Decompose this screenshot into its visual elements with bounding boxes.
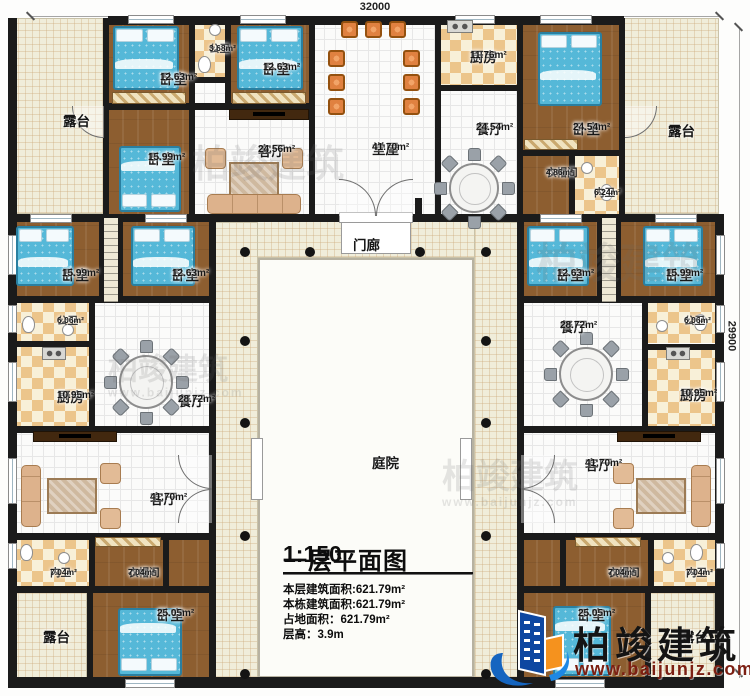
window-icon (716, 362, 725, 402)
stat-line: 占地面积：621.79m² (283, 613, 473, 628)
room-area (167, 538, 209, 587)
room-area: 12.63m² (263, 62, 300, 73)
brand-logo-url: www.baijunjz.com (575, 659, 750, 680)
window-icon (716, 305, 725, 333)
dining-table-icon (559, 347, 613, 401)
hall-chair-icon (389, 21, 406, 38)
column-dot (481, 531, 491, 541)
room-area: 12.63m² (172, 268, 209, 279)
room-衣帽间 (521, 156, 571, 216)
hall-chair-icon (403, 50, 420, 67)
window-icon (540, 214, 582, 223)
chair-icon (502, 182, 515, 195)
wall (642, 296, 648, 433)
brand-logo: 柏竣建筑 www.baijunjz.com (489, 599, 745, 694)
stat-line: 本层建筑面积:621.79m² (283, 583, 473, 598)
pillow-icon (571, 35, 597, 48)
watermark-url: www.baijunjz.com (442, 496, 578, 509)
blanket-fold (540, 70, 596, 80)
hall-chair-icon (341, 21, 358, 38)
window-icon (30, 214, 72, 223)
closet-hatch (232, 92, 306, 104)
floor-plan-canvas: 32000 29900 一层平面图1:150 本层建筑面积:621.79m² 本… (0, 0, 750, 696)
hall-chair-icon (365, 21, 382, 38)
pillow-icon (164, 229, 190, 242)
dimension-right-line (739, 28, 740, 678)
room-area: 7.04m² (608, 568, 635, 578)
dimension-right-value: 29900 (725, 321, 737, 352)
wall (517, 150, 625, 156)
pillow-icon (240, 29, 267, 42)
window-icon (655, 214, 697, 223)
dimension-top-value: 32000 (0, 1, 750, 13)
pillow-icon (46, 229, 69, 242)
stat-line: 本栋建筑面积:621.79m² (283, 598, 473, 613)
room-area (193, 81, 227, 105)
room-area: 6.06m² (684, 316, 711, 326)
room-area: 25.05m² (157, 608, 194, 619)
room-area: 6.24m² (594, 188, 621, 198)
hall-chair-icon (328, 50, 345, 67)
hall-chair-icon (403, 74, 420, 91)
sink-icon (662, 552, 674, 564)
gate-opening (251, 438, 263, 500)
pillow-icon (271, 29, 298, 42)
room-area: 28.72m² (178, 394, 215, 405)
stove-icon (42, 347, 66, 360)
room-area: 10.95m² (680, 388, 717, 399)
room-area: 3.68m² (209, 44, 236, 54)
pillow-icon (147, 29, 174, 42)
room-area: 41.70m² (585, 458, 622, 469)
watermark-url: www.baijunjz.com (108, 386, 244, 399)
closet-hatch (95, 537, 161, 547)
blanket-fold (18, 257, 68, 267)
room-area: 28.72m² (560, 320, 597, 331)
wall (89, 296, 95, 433)
column-dot (240, 247, 250, 257)
tv-cabinet-icon (617, 431, 701, 442)
tv-cabinet-icon (33, 431, 117, 442)
chair-icon (468, 148, 481, 161)
room-name: 露台 (668, 124, 695, 139)
rug-icon (636, 478, 686, 514)
room-area: 11.76m² (470, 50, 507, 61)
chair-icon (140, 340, 153, 353)
pillow-icon (134, 229, 160, 242)
room-area (101, 218, 121, 302)
room-area: 10.95m² (57, 390, 94, 401)
window-icon (240, 15, 286, 24)
column-dot (240, 418, 250, 428)
wall (8, 586, 209, 593)
armchair-icon (613, 508, 634, 529)
column-dot (240, 531, 250, 541)
blanket-fold (115, 59, 173, 69)
room-area: 6.06m² (57, 316, 84, 326)
brand-logo-icon (489, 601, 573, 693)
sink-icon (209, 24, 221, 36)
sofa-icon (207, 194, 301, 214)
pillow-icon (541, 35, 567, 48)
chair-icon (580, 404, 593, 417)
room-area: 41.70m² (372, 142, 409, 153)
room-area: 7.04m² (686, 568, 713, 578)
window-icon (145, 214, 187, 223)
armchair-icon (100, 463, 121, 484)
room-area (521, 538, 564, 587)
watermark: 柏竣建筑www.baijunjz.com (442, 460, 578, 496)
toilet-icon (690, 544, 703, 561)
rug-icon (47, 478, 97, 514)
window-icon (716, 235, 725, 275)
column-dot (481, 247, 491, 257)
window-icon (125, 679, 175, 688)
wall (415, 198, 422, 218)
window-icon (716, 543, 725, 569)
column-dot (481, 336, 491, 346)
hall-chair-icon (403, 98, 420, 115)
wall (8, 18, 17, 677)
sink-icon (58, 552, 70, 564)
window-icon (8, 362, 17, 402)
column-dot (415, 247, 425, 257)
room-name: 露台 (63, 114, 90, 129)
chair-icon (140, 412, 153, 425)
column-dot (240, 336, 250, 346)
sink-icon (581, 162, 593, 174)
room-内卫 (573, 156, 621, 216)
room-area: 4.86m² (546, 168, 573, 178)
plan-title: 一层平面图1:150 (283, 541, 473, 569)
chair-icon (468, 216, 481, 229)
room-area: 24.54m² (573, 122, 610, 133)
pillow-icon (116, 29, 143, 42)
pillow-icon (122, 194, 147, 207)
wall (517, 586, 721, 593)
hall-chair-icon (328, 74, 345, 91)
toilet-icon (20, 544, 33, 561)
room-area: 15.99m² (666, 268, 703, 279)
room-堂屋 (313, 18, 437, 216)
title-block: 一层平面图1:150 本层建筑面积:621.79m² 本栋建筑面积:621.79… (283, 541, 473, 643)
wall (560, 533, 566, 593)
chair-icon (434, 182, 447, 195)
room-area: 41.70m² (150, 492, 187, 503)
dining-table-icon (449, 163, 499, 213)
chair-icon (544, 368, 557, 381)
wall (648, 533, 654, 593)
wall (569, 152, 575, 216)
wall (209, 214, 216, 680)
closet-hatch (524, 139, 578, 150)
room-area: 7.04m² (50, 568, 77, 578)
sofa-icon (691, 465, 711, 527)
wall (435, 85, 523, 91)
room-name: 庭院 (372, 456, 399, 471)
watermark: 柏竣建筑www.baijunjz.com (108, 354, 228, 386)
window-icon (128, 15, 174, 24)
blanket-fold (120, 623, 176, 633)
room-area: 24.54m² (476, 122, 513, 133)
window-icon (8, 543, 17, 569)
armchair-icon (100, 508, 121, 529)
column-dot (240, 669, 250, 679)
window-icon (8, 458, 17, 504)
pillow-icon (151, 658, 177, 671)
window-icon (540, 15, 592, 24)
toilet-icon (198, 56, 211, 73)
stove-icon (447, 20, 473, 33)
column-dot (481, 418, 491, 428)
blanket-fold (133, 257, 189, 267)
sink-icon (656, 320, 668, 332)
wall (517, 18, 523, 214)
wall (225, 18, 231, 108)
wall (163, 533, 169, 593)
wall (87, 586, 93, 680)
closet-hatch (575, 537, 641, 547)
pillow-icon (19, 229, 42, 242)
room-area: 12.63m² (160, 72, 197, 83)
window-icon (8, 305, 17, 333)
room-area: 12.63m² (557, 268, 594, 279)
room-name: 门廊 (353, 238, 380, 253)
window-icon (716, 458, 725, 504)
room-name: 露台 (43, 630, 70, 645)
closet-hatch (112, 92, 186, 104)
pillow-icon (121, 658, 147, 671)
room-area: 24.56m² (258, 144, 295, 155)
column-dot (305, 247, 315, 257)
room-area: 15.99m² (62, 268, 99, 279)
room-area: 7.04m² (128, 568, 155, 578)
stove-icon (666, 347, 690, 360)
chair-icon (616, 368, 629, 381)
toilet-icon (22, 316, 35, 333)
pillow-icon (151, 194, 176, 207)
sofa-icon (21, 465, 41, 527)
tv-cabinet-icon (229, 109, 309, 120)
hall-chair-icon (328, 98, 345, 115)
room-area: 15.99m² (148, 152, 185, 163)
stat-line: 层高：3.9m (283, 628, 473, 643)
